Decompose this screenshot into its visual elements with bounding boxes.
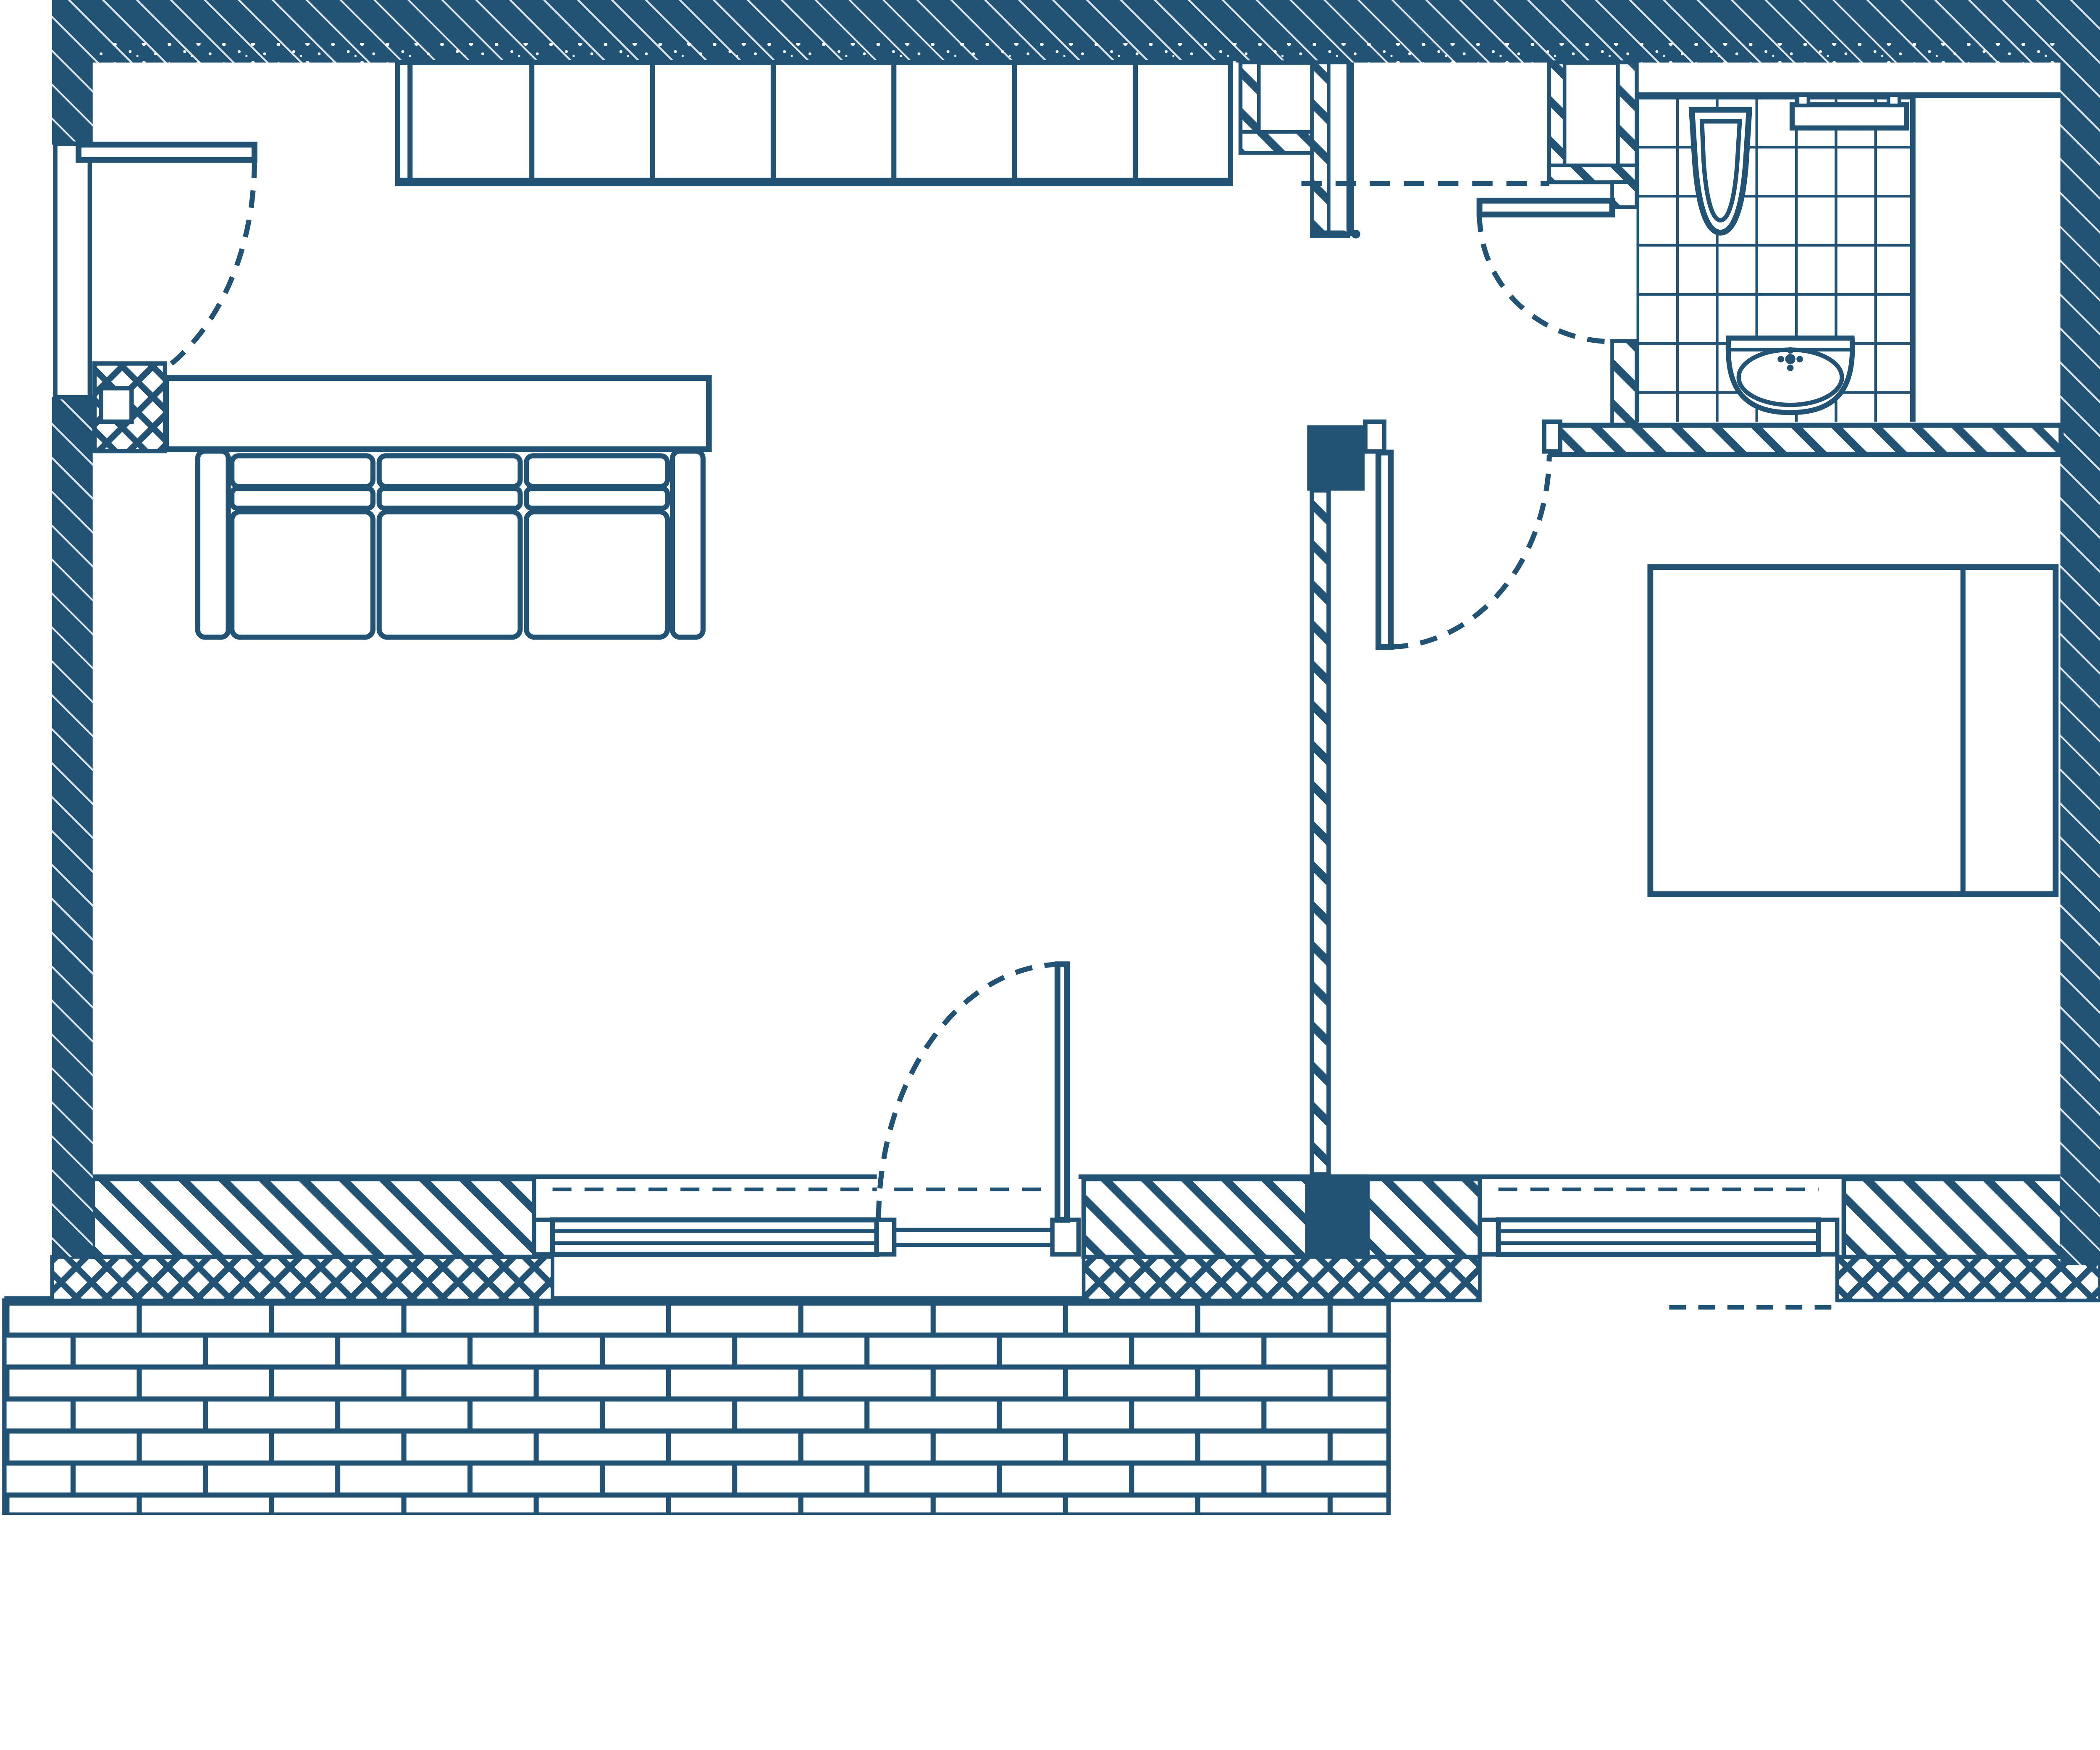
sofa-seat-cushion bbox=[232, 512, 373, 638]
sofa-back-table bbox=[166, 378, 709, 449]
bathroom-door-swing-arc bbox=[1480, 215, 1613, 342]
partition-hatch-strip bbox=[1312, 63, 1329, 236]
door-hinge-block-left bbox=[1365, 422, 1384, 451]
cistern-stub-right bbox=[1888, 95, 1899, 105]
top-outer-wall-speckle-edge bbox=[52, 43, 2100, 63]
partition-face-line bbox=[1348, 63, 1354, 236]
sofa-lumbar-cushion bbox=[379, 488, 520, 508]
sofa-seat-cushion bbox=[379, 512, 520, 638]
bottom-wall-pier-4 bbox=[1844, 1179, 2062, 1257]
hallway-partition-wall bbox=[1310, 63, 1360, 239]
entry-door-leaf bbox=[79, 144, 255, 160]
wall-junction-block bbox=[1307, 425, 1365, 491]
window-body bbox=[1499, 1220, 1819, 1254]
sofa bbox=[198, 451, 703, 637]
bedroom-door-leaf bbox=[1378, 453, 1391, 647]
bedroom-window bbox=[1480, 1189, 1837, 1254]
left-outer-wall-upper bbox=[52, 0, 93, 144]
cabinet-front-edge bbox=[398, 178, 1231, 184]
living-bedroom-divider-wall bbox=[1312, 491, 1329, 1175]
cistern-body bbox=[1792, 105, 1907, 128]
sofa-armrest-left bbox=[198, 451, 228, 637]
washbasin bbox=[1728, 338, 1853, 412]
right-outer-wall bbox=[2061, 0, 2100, 1265]
floor-plan-drawing bbox=[0, 0, 2100, 1515]
bedroom-door-swing-arc bbox=[1391, 455, 1549, 647]
terrace bbox=[4, 1296, 1389, 1514]
column-inset bbox=[101, 388, 132, 422]
partition-end-dot bbox=[1352, 230, 1360, 239]
bottom-wall-pier-1 bbox=[93, 1179, 534, 1257]
bathroom-wall-below-door bbox=[1612, 341, 1636, 428]
shaft-bottom-hatch bbox=[1549, 165, 1637, 182]
bathroom-wall-above-door bbox=[1612, 182, 1636, 207]
entry-door-frame bbox=[55, 144, 90, 397]
wall-band-hatch bbox=[1551, 425, 2061, 454]
radiator-column bbox=[94, 363, 165, 451]
sofa-lumbar-cushion bbox=[232, 488, 373, 508]
bottom-wall-pier-2 bbox=[1084, 1179, 1307, 1257]
floor-plan-page bbox=[0, 0, 2100, 1515]
balcony-door-frame-right bbox=[1053, 1220, 1079, 1254]
sofa-armrest-right bbox=[672, 451, 703, 637]
door-hinge-block-right bbox=[1544, 422, 1560, 451]
sofa-seat-cushion bbox=[526, 512, 667, 638]
window-frame-cap-left bbox=[1480, 1220, 1498, 1254]
window-frame-cap bbox=[534, 1220, 552, 1254]
terrace-brick-paving bbox=[4, 1301, 1389, 1515]
bathroom-door bbox=[1480, 182, 1637, 428]
bed-outline bbox=[1650, 567, 2055, 894]
sofa-lumbar-cushion bbox=[526, 488, 667, 508]
cabinet-outline bbox=[398, 63, 1231, 184]
sofa-back-cushion bbox=[526, 456, 667, 486]
partition-core bbox=[1328, 63, 1348, 236]
bottom-wall-column-block bbox=[1307, 1174, 1368, 1257]
balcony-door-frame-left bbox=[877, 1220, 895, 1254]
living-room-window bbox=[534, 1189, 877, 1254]
sofa-back-cushion bbox=[232, 456, 373, 486]
cistern-stub-left bbox=[1798, 95, 1809, 105]
bathroom-service-shaft bbox=[1549, 63, 1637, 182]
bathroom bbox=[1636, 92, 2060, 422]
bottom-wall-pier-3 bbox=[1368, 1179, 1480, 1257]
left-outer-wall-lower bbox=[52, 397, 93, 1257]
bathroom-ledge-line bbox=[1636, 92, 2060, 98]
double-bed bbox=[1650, 567, 2055, 894]
bathroom-door-leaf bbox=[1480, 201, 1612, 215]
window-body bbox=[553, 1220, 877, 1254]
entry-door bbox=[55, 144, 255, 397]
bottom-wall bbox=[52, 964, 2062, 1257]
balcony-door bbox=[877, 964, 1079, 1254]
balcony-door-swing-arc bbox=[879, 964, 1062, 1220]
crosshatch-band-left bbox=[52, 1257, 553, 1301]
partition-end-cap bbox=[1310, 231, 1347, 238]
sofa-back-cushion bbox=[379, 456, 520, 486]
kitchen-cabinet-run bbox=[398, 63, 1231, 184]
crosshatch-band-center bbox=[1084, 1257, 1480, 1301]
balcony-door-threshold bbox=[894, 1230, 1052, 1245]
balcony-door-leaf bbox=[1058, 964, 1067, 1220]
window-frame-cap-right bbox=[1819, 1220, 1837, 1254]
